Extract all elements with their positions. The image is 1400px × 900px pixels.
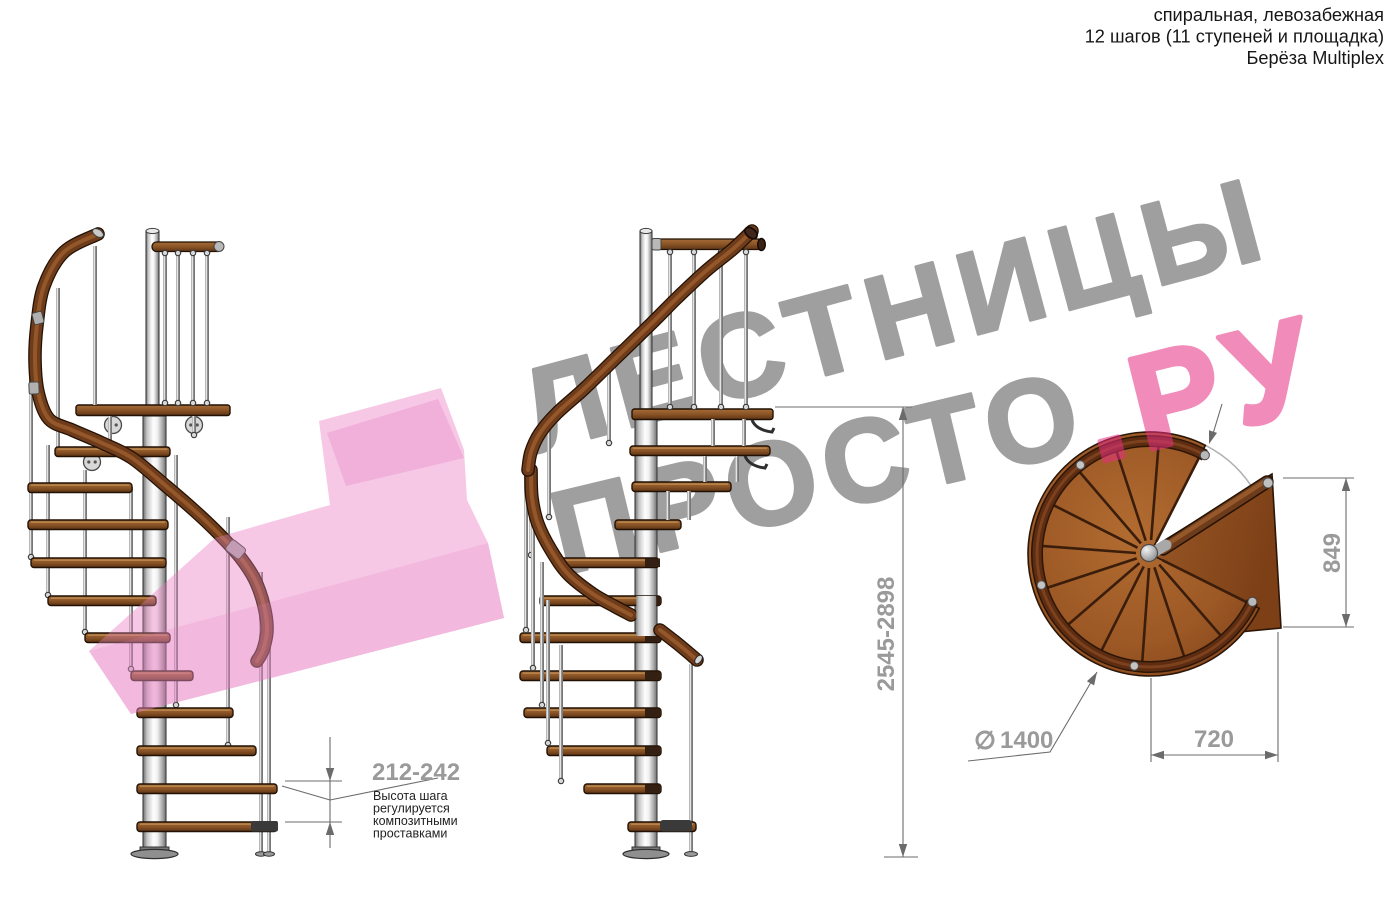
svg-text:проставками: проставками [373,827,447,841]
svg-text:12 шагов (11 ступеней и площад: 12 шагов (11 ступеней и площадка) [1085,27,1384,47]
svg-text:849: 849 [1319,533,1346,573]
svg-text:720: 720 [1194,726,1234,753]
svg-text:2545-2898: 2545-2898 [873,577,900,692]
svg-text:212-242: 212-242 [372,759,460,786]
svg-text:Берёза Multiplex: Берёза Multiplex [1246,48,1384,68]
svg-text:1400: 1400 [1000,727,1053,754]
svg-text:спиральная, левозабежная: спиральная, левозабежная [1154,5,1384,25]
